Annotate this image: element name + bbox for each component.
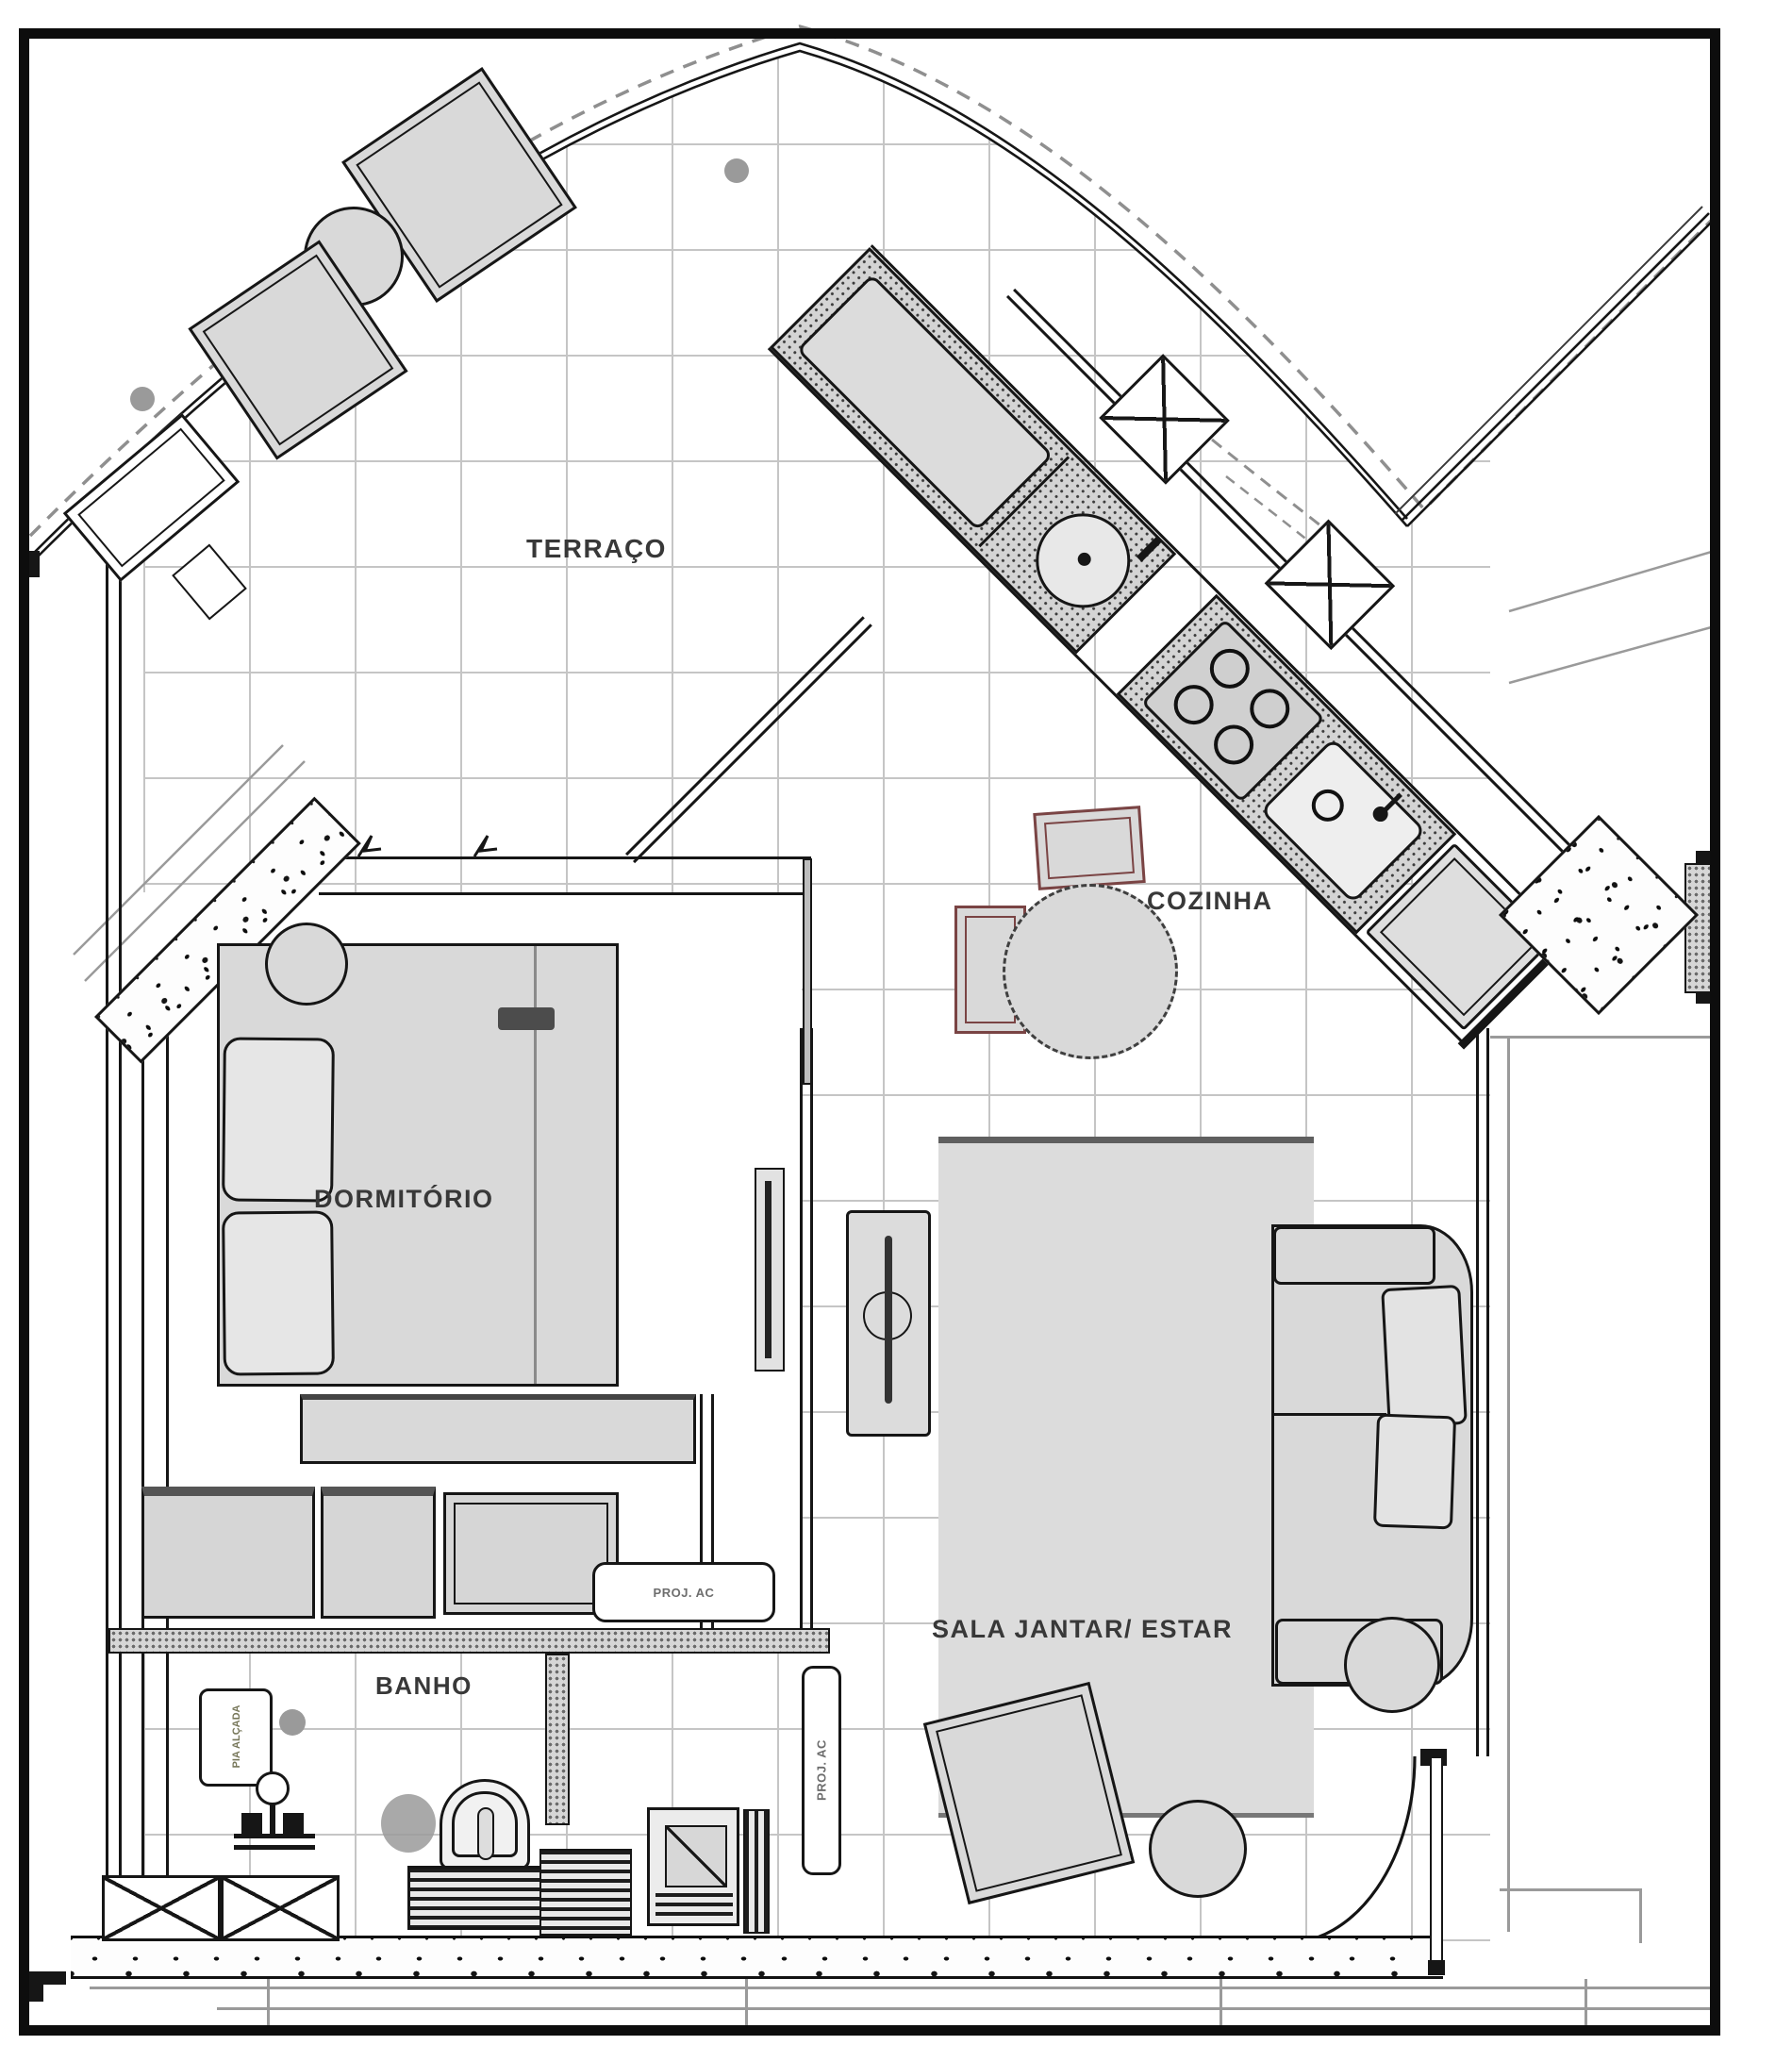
bathroom-label: BANHO	[375, 1671, 473, 1701]
terrace-label: TERRAÇO	[526, 534, 667, 564]
living-label: SALA JANTAR/ ESTAR	[932, 1615, 1233, 1644]
kitchen-label: COZINHA	[1147, 887, 1273, 916]
floor-plan: PIA ALÇADA PROJ. AC PROJ. AC TERRAÇO COZ…	[0, 0, 1792, 2045]
bedroom-label: DORMITÓRIO	[314, 1185, 494, 1214]
drawing-frame	[19, 28, 1720, 2036]
